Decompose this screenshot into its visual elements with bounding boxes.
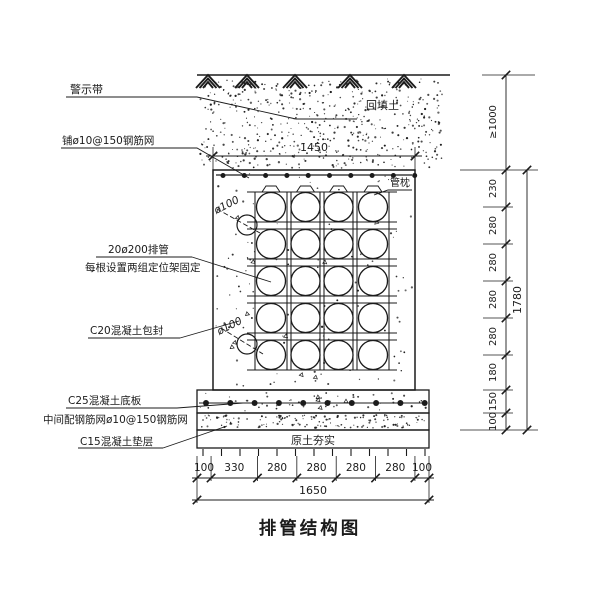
stipple-dot	[320, 425, 321, 426]
stipple-dot	[362, 92, 363, 93]
stipple-dot	[236, 149, 238, 151]
stipple-dot	[292, 133, 294, 135]
stipple-dot	[229, 107, 230, 108]
base-slab-label: C25混凝土底板	[68, 394, 142, 407]
stipple-dot	[368, 120, 370, 122]
stipple-dot	[389, 84, 390, 85]
stipple-dot	[306, 424, 308, 426]
stipple-dot	[334, 128, 335, 129]
stipple-dot	[207, 138, 209, 140]
stipple-dot	[327, 383, 329, 385]
stipple-dot	[216, 308, 218, 310]
stipple-dot	[384, 416, 385, 417]
stipple-dot	[439, 90, 441, 92]
stipple-dot	[263, 88, 265, 90]
stipple-dot	[353, 425, 354, 426]
stipple-dot	[323, 102, 324, 103]
stipple-dot	[303, 406, 305, 408]
stipple-dot	[375, 414, 377, 416]
stipple-dot	[210, 419, 211, 420]
stipple-dot	[390, 159, 391, 160]
stipple-dot	[372, 161, 374, 163]
stipple-dot	[276, 89, 277, 90]
stipple-dot	[320, 374, 321, 375]
cushion-label: C15混凝土垫层	[80, 435, 153, 448]
stipple-dot	[406, 422, 408, 424]
stipple-dot	[257, 107, 258, 108]
stipple-dot	[379, 409, 380, 410]
stipple-dot	[265, 392, 267, 394]
stipple-dot	[214, 94, 215, 95]
pipe-circles	[257, 193, 388, 370]
stipple-dot	[366, 133, 367, 134]
stipple-dot	[352, 147, 354, 149]
pipe-circle	[324, 230, 353, 259]
stipple-dot	[386, 415, 388, 417]
stipple-dot	[398, 362, 400, 364]
stipple-dot	[361, 124, 362, 125]
stipple-dot	[301, 135, 302, 136]
stipple-dot	[297, 144, 299, 146]
stipple-dot	[276, 416, 278, 418]
stipple-dot	[385, 128, 386, 129]
stipple-dot	[242, 91, 244, 93]
stipple-dot	[236, 384, 238, 386]
stipple-dot	[368, 90, 370, 92]
top-rebar-dot	[263, 173, 268, 178]
stipple-dot	[433, 98, 435, 100]
stipple-dot	[338, 150, 339, 151]
stipple-dot	[237, 165, 239, 167]
stipple-dot	[427, 94, 429, 96]
stipple-dot	[311, 121, 313, 123]
stipple-dot	[390, 232, 392, 234]
stipple-dot	[344, 126, 346, 128]
bottom-dim-label: 280	[385, 462, 405, 474]
drain-dia-upper-label: ø100	[211, 194, 241, 217]
stipple-dot	[254, 125, 255, 126]
stipple-dot	[258, 406, 260, 408]
stipple-dot	[319, 421, 321, 423]
stipple-dot	[282, 107, 284, 109]
stipple-dot	[323, 108, 325, 110]
stipple-dot	[402, 113, 404, 115]
stipple-dot	[411, 405, 413, 407]
stipple-dot	[224, 134, 225, 135]
stipple-dot	[263, 424, 264, 425]
stipple-dot	[355, 282, 357, 284]
slab-rebar-dot	[422, 400, 428, 406]
slab-rebar-dot	[252, 400, 258, 406]
stipple-dot	[284, 417, 286, 419]
stipple-dot	[277, 223, 278, 224]
stipple-dot	[253, 167, 255, 169]
stipple-dot	[261, 424, 263, 426]
stipple-dot	[320, 84, 322, 86]
stipple-dot	[259, 136, 260, 137]
stipple-dot	[249, 124, 251, 126]
stipple-dot	[310, 130, 312, 132]
stipple-dot	[423, 124, 425, 126]
stipple-dot	[386, 91, 387, 92]
stipple-dot	[246, 400, 248, 402]
stipple-dot	[205, 393, 206, 394]
stipple-dot	[371, 123, 373, 125]
stipple-dot	[235, 103, 236, 104]
stipple-dot	[210, 161, 211, 162]
stipple-dot	[336, 160, 338, 162]
stipple-dot	[290, 399, 292, 401]
stipple-dot	[261, 122, 262, 123]
stipple-dot	[311, 419, 312, 420]
pipe-circle	[359, 304, 388, 333]
stipple-dot	[277, 83, 279, 85]
stipple-dot	[440, 144, 442, 146]
stipple-dot	[247, 122, 248, 123]
drain-pipe-upper	[237, 215, 257, 235]
stipple-dot	[267, 99, 268, 100]
right-dim-label: 280	[488, 253, 499, 272]
stipple-dot	[314, 395, 315, 396]
stipple-dot	[418, 415, 420, 417]
stipple-dot	[387, 419, 389, 421]
stipple-dot	[372, 427, 374, 429]
stipple-dot	[381, 147, 383, 149]
stipple-dot	[228, 92, 229, 93]
aggregate-triangle	[344, 399, 348, 402]
stipple-dot	[396, 231, 397, 232]
cover-depth-value: ≥1000	[488, 105, 499, 139]
stipple-dot	[311, 90, 313, 92]
stipple-dot	[392, 398, 394, 400]
stipple-dot	[311, 416, 313, 418]
stipple-dot	[287, 123, 288, 124]
stipple-dot	[226, 80, 227, 81]
stipple-dot	[429, 134, 430, 135]
stipple-dot	[383, 128, 384, 129]
stipple-dot	[299, 98, 301, 100]
stipple-dot	[298, 163, 300, 165]
stipple-dot	[403, 277, 404, 278]
stipple-dot	[239, 137, 240, 138]
stipple-dot	[261, 415, 263, 417]
stipple-dot	[325, 392, 327, 394]
stipple-dot	[244, 111, 246, 113]
stipple-dot	[366, 160, 367, 161]
stipple-dot	[403, 351, 405, 353]
stipple-dot	[396, 276, 398, 278]
aggregate-triangle	[299, 372, 304, 377]
pipe-circle	[257, 230, 286, 259]
bottom-total-value: 1650	[299, 484, 327, 497]
stipple-dot	[280, 418, 282, 420]
stipple-dot	[240, 100, 241, 101]
stipple-dot	[431, 120, 432, 121]
bottom-dim-label: 100	[194, 462, 214, 474]
stipple-dot	[265, 99, 267, 101]
stipple-dot	[435, 121, 437, 123]
stipple-dot	[341, 167, 343, 169]
stipple-dot	[294, 90, 296, 92]
stipple-dot	[271, 129, 273, 131]
stipple-dot	[352, 394, 354, 396]
stipple-dot	[424, 420, 425, 421]
stipple-dot	[419, 82, 421, 84]
pipe-circle	[257, 267, 286, 296]
stipple-dot	[352, 134, 354, 136]
stipple-dot	[244, 137, 246, 139]
stipple-dot	[246, 149, 248, 151]
top-rebar-dot	[221, 173, 226, 178]
stipple-dot	[418, 137, 420, 139]
stipple-dot	[256, 133, 258, 135]
stipple-dot	[270, 383, 272, 385]
stipple-dot	[328, 94, 329, 95]
stipple-dot	[423, 116, 425, 118]
stipple-dot	[424, 162, 426, 164]
stipple-dot	[329, 224, 331, 226]
stipple-dot	[401, 417, 402, 418]
stipple-dot	[315, 380, 317, 382]
stipple-dot	[257, 164, 258, 165]
stipple-dot	[314, 371, 316, 373]
stipple-dot	[353, 116, 354, 117]
stipple-dot	[243, 327, 245, 329]
stipple-dot	[201, 143, 202, 144]
stipple-dot	[238, 285, 240, 287]
stipple-dot	[398, 290, 400, 292]
stipple-dot	[420, 78, 421, 79]
stipple-dot	[384, 145, 386, 147]
stipple-dot	[441, 157, 443, 159]
stipple-dot	[419, 401, 420, 402]
stipple-dot	[288, 118, 289, 119]
right-dim-label: 180	[488, 363, 499, 382]
stipple-dot	[295, 418, 296, 419]
stipple-dot	[373, 394, 375, 396]
stipple-dot	[278, 111, 279, 112]
stipple-dot	[244, 410, 245, 411]
stipple-dot	[282, 424, 283, 425]
stipple-dot	[372, 141, 373, 142]
stipple-dot	[435, 148, 437, 150]
pipe-circle	[324, 341, 353, 370]
stipple-dot	[206, 146, 208, 148]
stipple-dot	[245, 152, 246, 153]
stipple-dot	[289, 415, 291, 417]
stipple-dot	[206, 417, 208, 419]
stipple-dot	[421, 126, 422, 127]
stipple-dot	[354, 417, 356, 419]
stipple-dot	[410, 120, 411, 121]
stipple-dot	[336, 404, 338, 406]
stipple-dot	[278, 141, 280, 143]
stipple-dot	[233, 85, 235, 87]
stipple-dot	[289, 102, 290, 103]
stipple-dot	[403, 395, 405, 397]
stipple-dot	[291, 167, 293, 169]
stipple-dot	[344, 162, 346, 164]
stipple-dot	[293, 424, 294, 425]
stipple-dot	[318, 131, 319, 132]
stipple-dot	[353, 163, 354, 164]
stipple-dot	[200, 407, 201, 408]
pipe-pillow	[297, 186, 315, 192]
slab-rebar-dot	[203, 400, 209, 406]
stipple-dot	[367, 406, 369, 408]
stipple-dot	[362, 425, 364, 427]
stipple-dot	[356, 149, 358, 151]
stipple-dot	[231, 134, 233, 136]
stipple-dot	[304, 123, 305, 124]
slab-rebar-dot	[373, 400, 379, 406]
stipple-dot	[258, 427, 260, 429]
stipple-dot	[336, 165, 337, 166]
stipple-dot	[362, 414, 364, 416]
stipple-dot	[441, 94, 443, 96]
stipple-dot	[419, 98, 421, 100]
stipple-dot	[379, 119, 380, 120]
stipple-dot	[281, 103, 283, 105]
stipple-dot	[374, 418, 376, 420]
stipple-dot	[322, 82, 324, 84]
stipple-dot	[313, 416, 315, 418]
stipple-dot	[392, 165, 393, 166]
stipple-dot	[204, 142, 205, 143]
stipple-dot	[387, 81, 389, 83]
pipes-leader	[192, 257, 271, 282]
stipple-dot	[254, 91, 255, 92]
stipple-dot	[411, 149, 413, 151]
ground-chevron	[392, 75, 416, 88]
stipple-dot	[241, 149, 243, 151]
stipple-dot	[386, 417, 388, 419]
stipple-dot	[347, 139, 349, 141]
slab-rebar-dot	[325, 400, 331, 406]
pipe-circle	[291, 341, 320, 370]
top-mesh-label: 铺ø10@150钢筋网	[62, 134, 154, 147]
stipple-dot	[203, 164, 205, 166]
stipple-dot	[272, 124, 274, 126]
stipple-dot	[418, 102, 420, 104]
stipple-dot	[337, 415, 339, 417]
stipple-dot	[260, 103, 261, 104]
stipple-dot	[412, 106, 414, 108]
stipple-dot	[393, 237, 394, 238]
stipple-dot	[274, 134, 276, 136]
pipe-circle	[359, 341, 388, 370]
stipple-dot	[357, 305, 359, 307]
stipple-dot	[321, 397, 323, 399]
stipple-dot	[421, 400, 423, 402]
stipple-dot	[340, 424, 341, 425]
top-mesh-leader	[61, 148, 249, 178]
stipple-dot	[307, 128, 309, 130]
stipple-dot	[376, 82, 378, 84]
stipple-dot	[400, 148, 402, 150]
stipple-dot	[340, 81, 341, 82]
stipple-dot	[334, 105, 336, 107]
stipple-dot	[284, 145, 285, 146]
stipple-dot	[273, 382, 274, 383]
stipple-dot	[279, 153, 281, 155]
stipple-dot	[238, 417, 240, 419]
stipple-dot	[292, 424, 294, 426]
stipple-dot	[417, 419, 419, 421]
stipple-dot	[315, 427, 317, 429]
pipe-pillow	[364, 186, 382, 192]
stipple-dot	[216, 275, 218, 277]
stipple-dot	[336, 151, 337, 152]
top-rebar-dot	[242, 173, 247, 178]
stipple-dot	[359, 379, 360, 380]
stipple-dot	[242, 385, 244, 387]
stipple-dot	[260, 419, 261, 420]
slab-rebar-dot	[300, 400, 306, 406]
stipple-dot	[324, 425, 326, 427]
stipple-dot	[380, 137, 381, 138]
stipple-dot	[314, 85, 316, 87]
stipple-dot	[394, 356, 396, 358]
backfill-label: 回填土	[366, 98, 399, 112]
stipple-dot	[407, 101, 408, 102]
top-dim-value: 1450	[300, 141, 328, 154]
stipple-dot	[281, 131, 282, 132]
stipple-dot	[297, 423, 298, 424]
stipple-dot	[224, 128, 225, 129]
stipple-dot	[245, 153, 246, 154]
stipple-dot	[294, 381, 296, 383]
stipple-dot	[222, 122, 224, 124]
stipple-dot	[378, 378, 379, 379]
stipple-dot	[337, 396, 338, 397]
stipple-dot	[399, 417, 401, 419]
stipple-dot	[439, 132, 441, 134]
stipple-dot	[228, 258, 229, 259]
stipple-dot	[276, 373, 277, 374]
stipple-dot	[229, 294, 230, 295]
stipple-dot	[223, 415, 224, 416]
stipple-dot	[400, 350, 402, 352]
stipple-dot	[232, 254, 234, 256]
stipple-dot	[394, 416, 395, 417]
stipple-dot	[275, 88, 276, 89]
stipple-dot	[250, 102, 252, 104]
stipple-dot	[299, 93, 301, 95]
stipple-dot	[379, 180, 380, 181]
stipple-dot	[357, 426, 359, 428]
stipple-dot	[216, 135, 218, 137]
stipple-dot	[235, 190, 237, 192]
stipple-dot	[220, 131, 222, 133]
stipple-dot	[363, 135, 364, 136]
stipple-dot	[221, 425, 222, 426]
slab-texture	[200, 392, 427, 412]
stipple-dot	[314, 112, 315, 113]
stipple-dot	[378, 181, 379, 182]
stipple-dot	[286, 416, 288, 418]
stipple-dot	[408, 124, 409, 125]
stipple-dot	[381, 127, 383, 129]
stipple-dot	[344, 427, 345, 428]
stipple-dot	[279, 100, 281, 102]
stipple-dot	[292, 97, 294, 99]
cushion-leader	[163, 426, 227, 448]
stipple-dot	[384, 176, 385, 177]
stipple-dot	[361, 426, 363, 428]
stipple-dot	[365, 150, 367, 152]
stipple-dot	[421, 141, 423, 143]
